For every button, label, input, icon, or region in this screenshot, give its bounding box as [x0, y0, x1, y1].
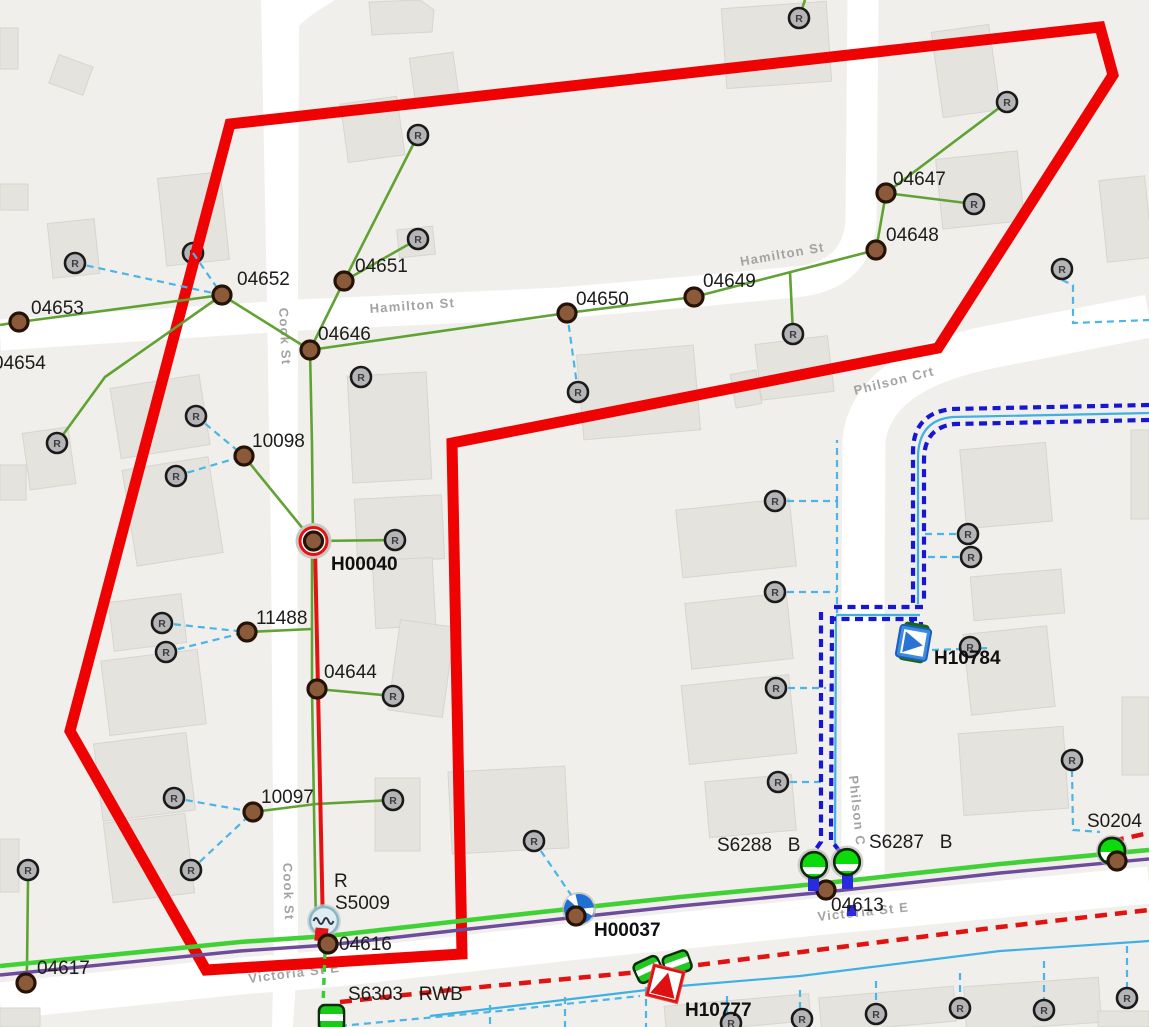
svg-text:R: R — [334, 871, 348, 892]
svg-text:04650: 04650 — [576, 289, 629, 310]
svg-text:S6287 B: S6287 B — [869, 832, 952, 853]
svg-text:Cook St: Cook St — [280, 863, 297, 921]
svg-text:H00040: H00040 — [331, 554, 398, 575]
svg-text:04648: 04648 — [886, 225, 939, 246]
svg-text:04644: 04644 — [324, 662, 377, 683]
svg-text:10097: 10097 — [261, 787, 314, 808]
svg-text:S5009: S5009 — [335, 893, 390, 914]
svg-text:04651: 04651 — [355, 256, 408, 277]
svg-text:S6288 B: S6288 B — [717, 835, 800, 856]
svg-text:04646: 04646 — [318, 324, 371, 345]
svg-text:Cook St: Cook St — [276, 307, 294, 365]
svg-text:04616: 04616 — [339, 934, 392, 955]
svg-text:04617: 04617 — [37, 958, 90, 979]
svg-text:S0204: S0204 — [1087, 811, 1142, 832]
svg-text:04647: 04647 — [893, 169, 946, 190]
svg-text:H10777: H10777 — [685, 1000, 752, 1021]
svg-text:04652: 04652 — [237, 269, 290, 290]
svg-text:04613: 04613 — [831, 895, 884, 916]
svg-text:H00037: H00037 — [594, 920, 661, 941]
svg-text:11488: 11488 — [256, 608, 307, 629]
svg-text:S6303 RWB: S6303 RWB — [348, 984, 463, 1005]
svg-text:04649: 04649 — [703, 271, 756, 292]
svg-text:H10784: H10784 — [934, 648, 1001, 669]
svg-text:04654: 04654 — [0, 353, 46, 374]
svg-text:10098: 10098 — [252, 431, 305, 452]
svg-text:04653: 04653 — [31, 298, 84, 319]
